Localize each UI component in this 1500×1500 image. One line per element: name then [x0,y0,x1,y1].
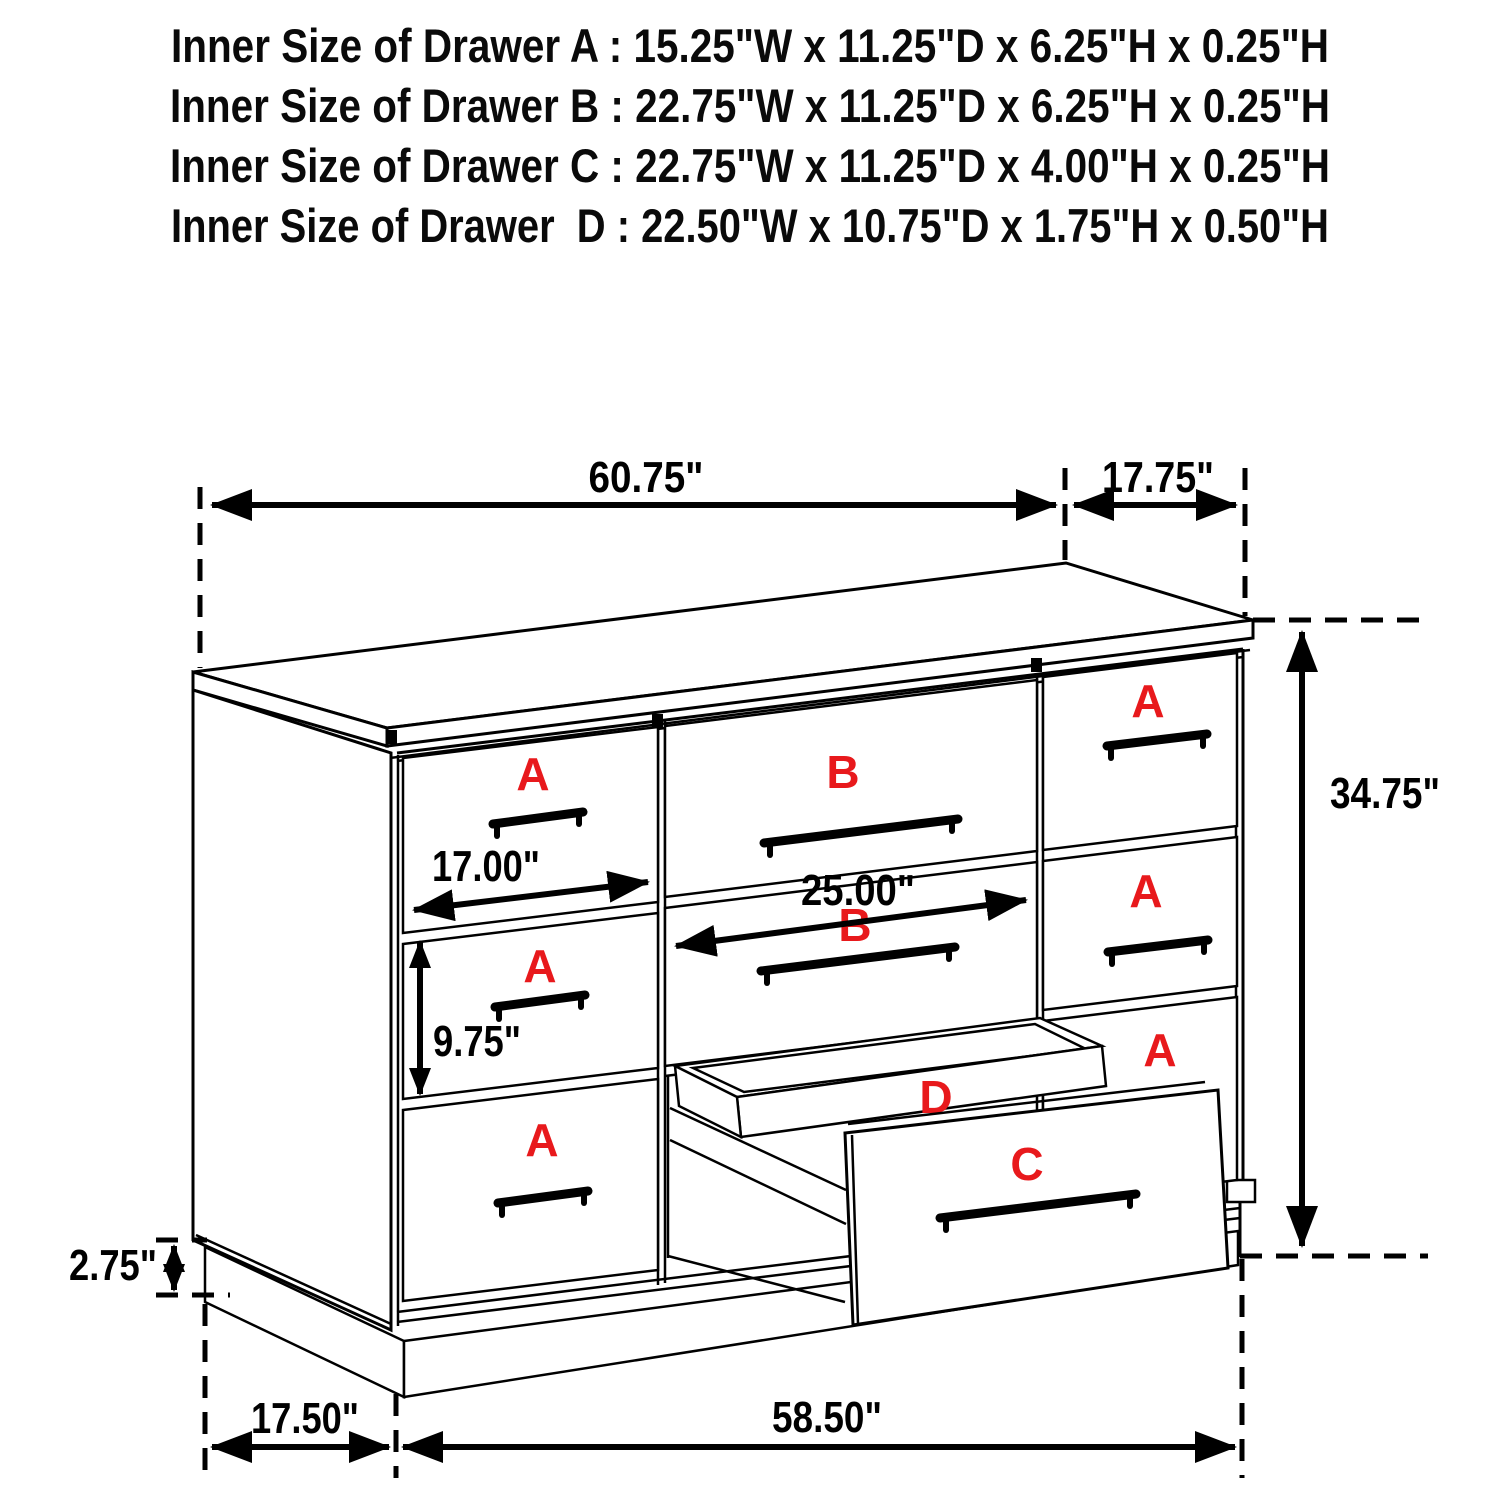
label-drawer-a3: A [525,1114,558,1166]
dim-top-depth-value: 17.75" [1102,453,1214,502]
dim-base-depth-value: 17.50" [251,1394,359,1443]
spec-line-drawer-d: Inner Size of Drawer D : 22.50"W x 10.75… [171,199,1329,252]
label-drawer-b1: B [826,746,859,798]
spec-line-drawer-b: Inner Size of Drawer B : 22.75"W x 11.25… [170,79,1330,132]
drawer-a5-front [1043,837,1237,1010]
drawer-c-pulled-out: C [845,1082,1228,1325]
label-drawer-a1: A [516,748,549,800]
dim-drawer-a-height-value: 9.75" [433,1017,521,1066]
spec-line-drawer-a: Inner Size of Drawer A : 15.25"W x 11.25… [171,19,1329,72]
dim-top-depth: 17.75" [1074,453,1236,505]
dim-base-height: 2.75" [69,1241,174,1290]
drawer-a3-front [403,1079,658,1301]
dim-drawer-b-width-value: 25.00" [801,866,915,915]
spec-line-drawer-c: Inner Size of Drawer C : 22.75"W x 11.25… [170,139,1330,192]
left-drawer-column [403,727,658,1301]
label-drawer-c: C [1010,1138,1043,1190]
dim-top-width: 60.75" [212,453,1056,505]
dim-overall-height-value: 34.75" [1330,769,1440,818]
label-drawer-a2: A [523,940,556,992]
cabinet-drawing: A A A B B A A A D C [193,563,1255,1397]
dim-base-width-value: 58.50" [772,1393,882,1442]
diagram-canvas: Inner Size of Drawer A : 15.25"W x 11.25… [0,0,1500,1500]
dim-base-depth: 17.50" [212,1394,389,1447]
dresser-dimension-diagram: Inner Size of Drawer A : 15.25"W x 11.25… [0,0,1500,1500]
dim-top-width-value: 60.75" [589,453,704,502]
label-drawer-a4: A [1131,675,1164,727]
dim-drawer-a-width-value: 17.00" [432,842,540,891]
cabinet-left-side-panel [193,690,398,1330]
label-drawer-a6: A [1143,1024,1176,1076]
dim-base-width: 58.50" [403,1393,1235,1447]
spec-title-block: Inner Size of Drawer A : 15.25"W x 11.25… [170,19,1330,252]
label-drawer-a5: A [1129,865,1162,917]
dim-base-height-value: 2.75" [69,1241,157,1290]
dim-overall-height: 34.75" [1302,632,1440,1246]
